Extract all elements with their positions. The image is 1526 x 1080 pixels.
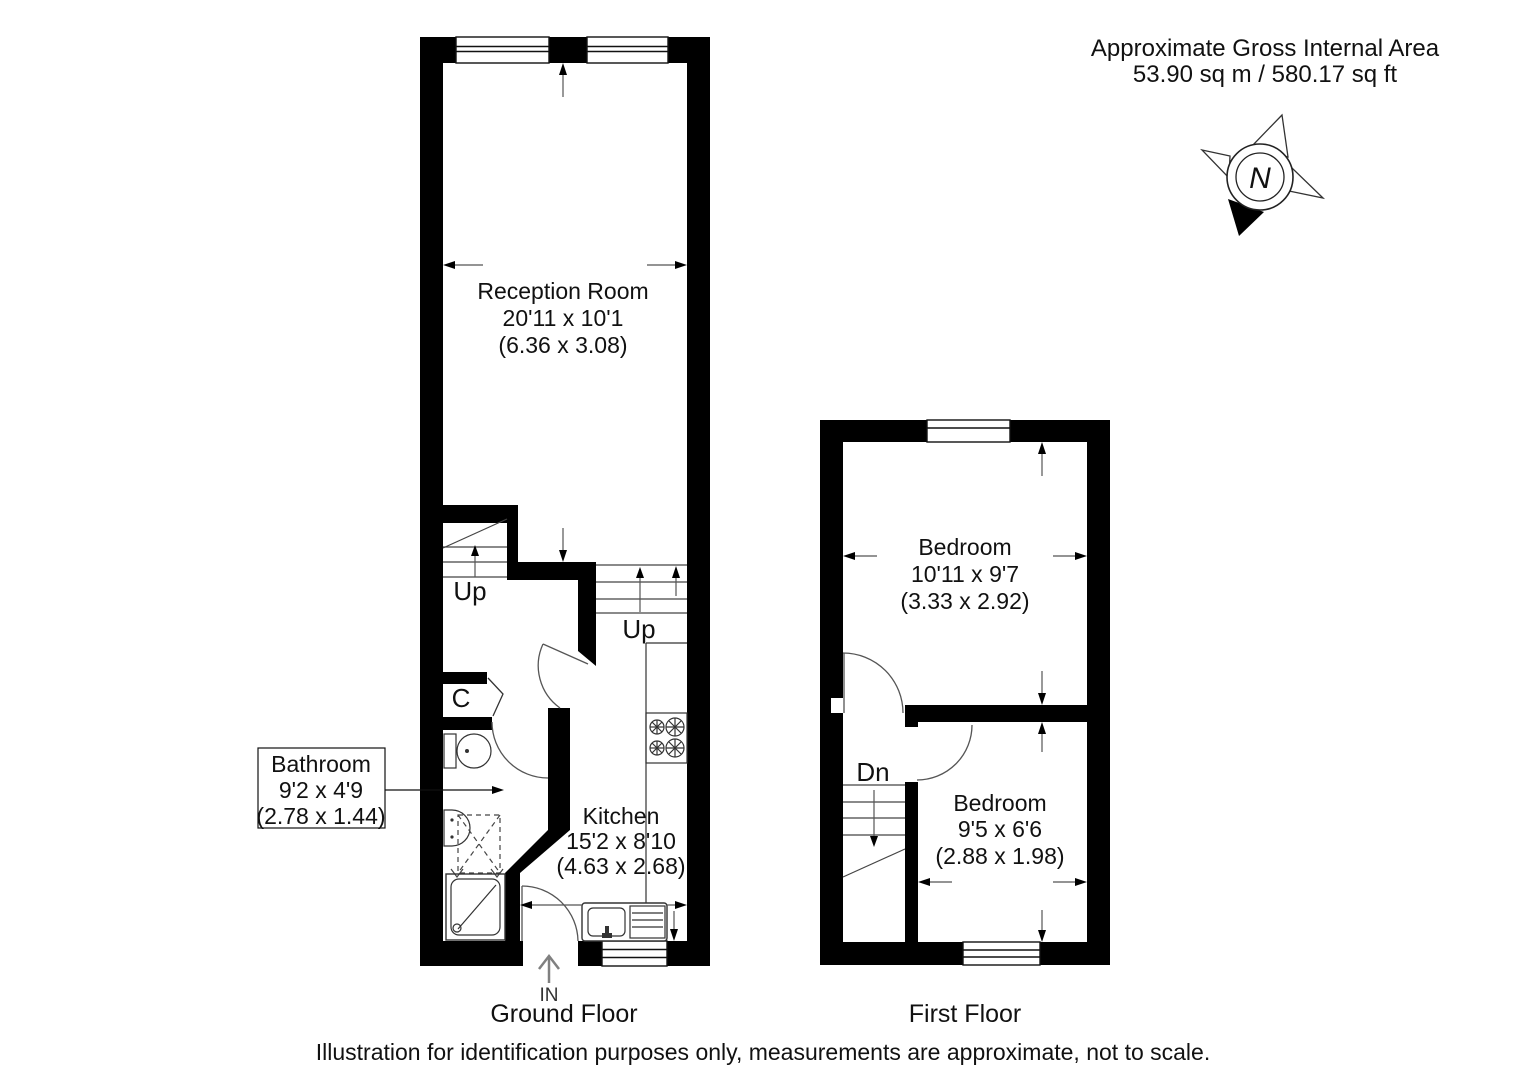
first-floor-plan: Dn: [820, 420, 1110, 1028]
burner: [666, 739, 684, 757]
floorplan-page: Approximate Gross Internal Area 53.90 sq…: [0, 0, 1526, 1080]
stair-rail-diagonal: [843, 849, 905, 877]
reception-width-arrows: [443, 261, 687, 269]
bathroom-name: Bathroom: [271, 751, 371, 777]
gross-area-value: 53.90 sq m / 580.17 sq ft: [1133, 61, 1397, 88]
stair-side-wall: [905, 782, 918, 942]
entry-door-gap: [523, 940, 578, 967]
bathroom-right-wall-lower: [505, 873, 520, 941]
window-bottom: [602, 941, 667, 966]
wall-left: [820, 420, 843, 965]
stairs-up-left-label: Up: [453, 576, 486, 606]
area-header: Approximate Gross Internal Area 53.90 sq…: [1091, 35, 1440, 88]
bedroom-front-door: [843, 653, 903, 713]
compass-point-west: [1202, 150, 1230, 178]
burner: [650, 720, 664, 734]
bedroom-front-label: Bedroom 10'11 x 9'7 (3.33 x 2.92): [900, 534, 1029, 614]
staircase-down: [843, 785, 905, 877]
bathroom-top-wall: [443, 717, 492, 730]
stair-rail-diagonal: [443, 519, 507, 548]
floorplan-drawing: Approximate Gross Internal Area 53.90 sq…: [0, 0, 1526, 1080]
stairs-up-right-label: Up: [622, 614, 655, 644]
kitchen-hall-wall: [578, 562, 596, 666]
first-floor-windows: [927, 420, 1040, 965]
window-top: [927, 420, 1010, 442]
door-recess-notch: [831, 698, 843, 713]
hall-door: [538, 644, 588, 708]
divider-wall-stub: [905, 705, 918, 727]
bedroom-front-depth-arrows: [1038, 442, 1046, 705]
kitchen-sink-unit: [582, 903, 667, 941]
bedroom-rear-size-metric: (2.88 x 1.98): [935, 843, 1064, 869]
gross-area-title: Approximate Gross Internal Area: [1091, 35, 1440, 62]
staircase-up-right: [596, 565, 687, 613]
compass-rose: N: [1202, 115, 1323, 236]
toilet: [444, 734, 491, 768]
bedroom-divider-wall: [905, 705, 1087, 722]
window-bottom: [963, 942, 1040, 965]
bedroom-rear-width-arrows: [918, 878, 1087, 886]
reception-size-imperial: 20'11 x 10'1: [503, 305, 624, 331]
ground-floor-doors: [488, 644, 588, 941]
stair-direction-arrow: [870, 836, 878, 847]
stair-enclosure-top-wall: [443, 505, 507, 523]
first-floor-walls: [820, 420, 1110, 965]
bathroom-right-wall-upper: [548, 708, 570, 830]
ground-floor-plan: Up Up: [256, 37, 710, 1028]
bathroom-callout-arrow: [492, 786, 504, 794]
basin: [444, 810, 470, 846]
window-top-left: [456, 37, 549, 63]
bedroom-front-name: Bedroom: [918, 534, 1011, 560]
kitchen-size-imperial: 15'2 x 8'10: [566, 828, 676, 854]
reception-size-metric: (6.36 x 3.08): [498, 332, 627, 358]
bathroom-door: [492, 722, 548, 778]
burner: [650, 741, 664, 755]
ground-floor-caption: Ground Floor: [490, 1000, 637, 1028]
shower-enclosure: [458, 815, 500, 873]
reception-room-label: Reception Room 20'11 x 10'1 (6.36 x 3.08…: [477, 278, 648, 358]
bedroom-front-size-imperial: 10'11 x 9'7: [911, 561, 1019, 587]
bedroom-front-size-metric: (3.33 x 2.92): [900, 588, 1029, 614]
bathroom-size-metric: (2.78 x 1.44): [256, 803, 385, 829]
disclaimer-text: Illustration for identification purposes…: [316, 1039, 1210, 1065]
bedroom-rear-size-imperial: 9'5 x 6'6: [958, 816, 1042, 842]
compass-north-letter: N: [1249, 162, 1271, 195]
shower-tray: [446, 874, 505, 940]
bedroom-rear-name: Bedroom: [953, 790, 1046, 816]
wall-right: [687, 37, 710, 966]
reception-name: Reception Room: [477, 278, 648, 304]
closet-label: C: [452, 683, 471, 713]
staircase-up-left: [443, 519, 507, 577]
burner: [666, 718, 684, 736]
stair-direction-arrow: [636, 567, 644, 578]
bathroom-size-imperial: 9'2 x 4'9: [279, 777, 363, 803]
wall-left: [420, 37, 443, 966]
kitchen-size-metric: (4.63 x 2.68): [556, 853, 685, 879]
first-floor-caption: First Floor: [909, 1000, 1022, 1028]
kitchen-fittings: [582, 643, 687, 941]
kitchen-name: Kitchen: [583, 803, 660, 829]
stairs-down-label: Dn: [856, 757, 889, 787]
wall-right: [1087, 420, 1110, 965]
window-top-right: [587, 37, 668, 63]
kitchen-label: Kitchen 15'2 x 8'10 (4.63 x 2.68): [556, 803, 685, 879]
shower-enclosure-marks: [451, 869, 503, 877]
bedroom-rear-label: Bedroom 9'5 x 6'6 (2.88 x 1.98): [935, 790, 1064, 869]
compass-point-east: [1289, 167, 1323, 198]
closet-door: [488, 678, 503, 716]
entry-door: [522, 886, 578, 941]
stove: [646, 713, 687, 763]
bathroom-fixtures: [444, 734, 505, 940]
bedroom-rear-door: [917, 725, 972, 780]
